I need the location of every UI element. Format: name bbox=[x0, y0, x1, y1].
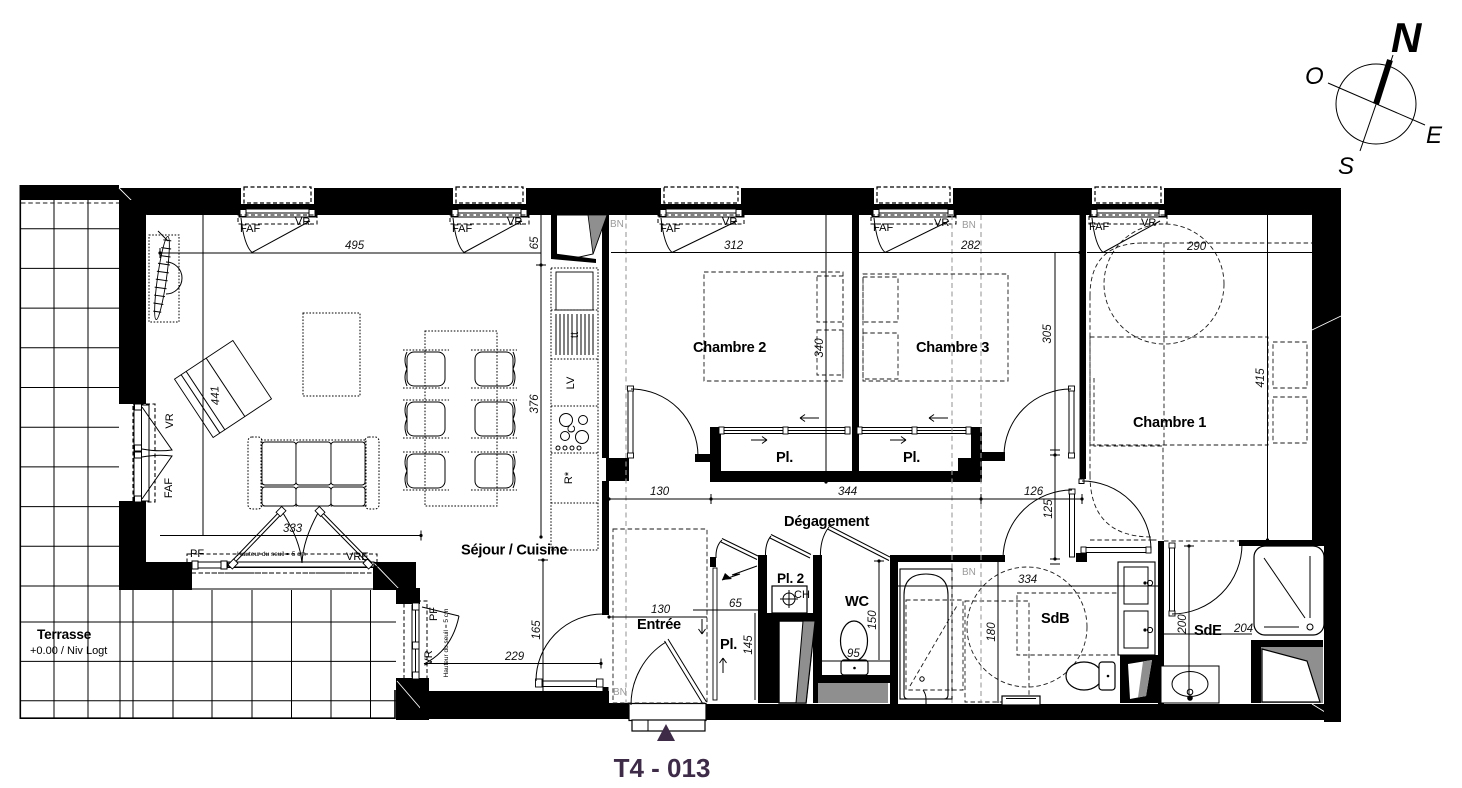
svg-text:+0.00 / Niv Logt: +0.00 / Niv Logt bbox=[30, 645, 107, 657]
svg-text:495: 495 bbox=[345, 240, 365, 252]
svg-text:FAF: FAF bbox=[452, 223, 472, 235]
svg-text:Dégagement: Dégagement bbox=[784, 514, 869, 530]
svg-text:340: 340 bbox=[814, 338, 826, 358]
svg-text:Chambre 2: Chambre 2 bbox=[693, 340, 766, 356]
svg-text:200: 200 bbox=[1177, 614, 1189, 635]
svg-text:BN: BN bbox=[610, 219, 624, 230]
svg-text:FAF: FAF bbox=[660, 223, 680, 235]
svg-text:VR: VR bbox=[295, 216, 310, 228]
svg-text:145: 145 bbox=[743, 635, 755, 655]
svg-text:125: 125 bbox=[1043, 499, 1055, 519]
svg-text:333: 333 bbox=[283, 523, 303, 535]
svg-text:Chambre 3: Chambre 3 bbox=[916, 340, 989, 356]
svg-text:65: 65 bbox=[529, 236, 541, 249]
svg-text:150: 150 bbox=[867, 610, 879, 630]
svg-text:229: 229 bbox=[504, 651, 525, 663]
svg-text:130: 130 bbox=[651, 604, 671, 616]
svg-text:415: 415 bbox=[1255, 368, 1267, 388]
svg-text:VR: VR bbox=[507, 216, 522, 228]
svg-text:376: 376 bbox=[529, 394, 541, 414]
svg-text:312: 312 bbox=[724, 240, 744, 252]
svg-text:BN: BN bbox=[613, 687, 627, 698]
svg-text:130: 130 bbox=[650, 486, 670, 498]
svg-text:Pl.: Pl. bbox=[903, 450, 920, 466]
svg-text:VR: VR bbox=[164, 413, 176, 428]
svg-text:Pl. 2: Pl. 2 bbox=[777, 571, 805, 586]
svg-text:tt: tt bbox=[569, 332, 581, 338]
svg-text:126: 126 bbox=[1024, 486, 1044, 498]
svg-text:FAF: FAF bbox=[1089, 221, 1109, 233]
svg-text:WC: WC bbox=[845, 594, 870, 610]
svg-text:Chambre 1: Chambre 1 bbox=[1133, 415, 1206, 431]
svg-text:C: C bbox=[566, 425, 578, 433]
svg-text:Terrasse: Terrasse bbox=[37, 627, 92, 642]
svg-text:Hauteur du seuil = 5 cm: Hauteur du seuil = 5 cm bbox=[237, 551, 306, 558]
svg-text:344: 344 bbox=[838, 486, 857, 498]
svg-text:305: 305 bbox=[1042, 324, 1054, 344]
svg-text:R*: R* bbox=[563, 471, 575, 484]
svg-text:T4 - 013: T4 - 013 bbox=[614, 753, 711, 783]
svg-text:CH: CH bbox=[794, 589, 810, 601]
svg-text:95: 95 bbox=[847, 648, 860, 660]
svg-text:Séjour / Cuisine: Séjour / Cuisine bbox=[461, 543, 567, 559]
svg-text:PF: PF bbox=[190, 548, 204, 560]
svg-text:Hauteur du seuil = 5 cm: Hauteur du seuil = 5 cm bbox=[443, 609, 450, 678]
svg-text:180: 180 bbox=[986, 622, 998, 642]
svg-text:165: 165 bbox=[531, 620, 543, 640]
svg-text:Pl.: Pl. bbox=[720, 637, 737, 653]
svg-text:N: N bbox=[1391, 14, 1423, 61]
svg-text:BN: BN bbox=[962, 220, 976, 231]
svg-text:290: 290 bbox=[1186, 241, 1207, 253]
svg-text:334: 334 bbox=[1018, 574, 1037, 586]
svg-text:VR: VR bbox=[722, 216, 737, 228]
svg-text:282: 282 bbox=[960, 240, 981, 252]
svg-text:VR: VR bbox=[1141, 217, 1156, 229]
svg-text:VR: VR bbox=[934, 217, 949, 229]
svg-text:SdB: SdB bbox=[1041, 611, 1069, 627]
svg-text:441: 441 bbox=[209, 386, 222, 406]
svg-text:O: O bbox=[1305, 63, 1324, 90]
svg-text:E: E bbox=[1426, 122, 1443, 149]
svg-text:204: 204 bbox=[1233, 623, 1253, 635]
svg-text:Pl.: Pl. bbox=[776, 450, 793, 466]
svg-text:FAF: FAF bbox=[240, 223, 260, 235]
svg-text:FAF: FAF bbox=[873, 222, 893, 234]
svg-text:FAF: FAF bbox=[163, 478, 175, 498]
svg-text:65: 65 bbox=[729, 598, 742, 610]
svg-text:PF: PF bbox=[428, 607, 440, 621]
svg-text:VRE: VRE bbox=[346, 551, 369, 563]
svg-text:S: S bbox=[1338, 153, 1354, 180]
svg-text:BN: BN bbox=[962, 567, 976, 578]
svg-text:SdE: SdE bbox=[1194, 623, 1222, 639]
svg-text:LV: LV bbox=[565, 376, 577, 389]
svg-text:Entrée: Entrée bbox=[637, 617, 681, 633]
